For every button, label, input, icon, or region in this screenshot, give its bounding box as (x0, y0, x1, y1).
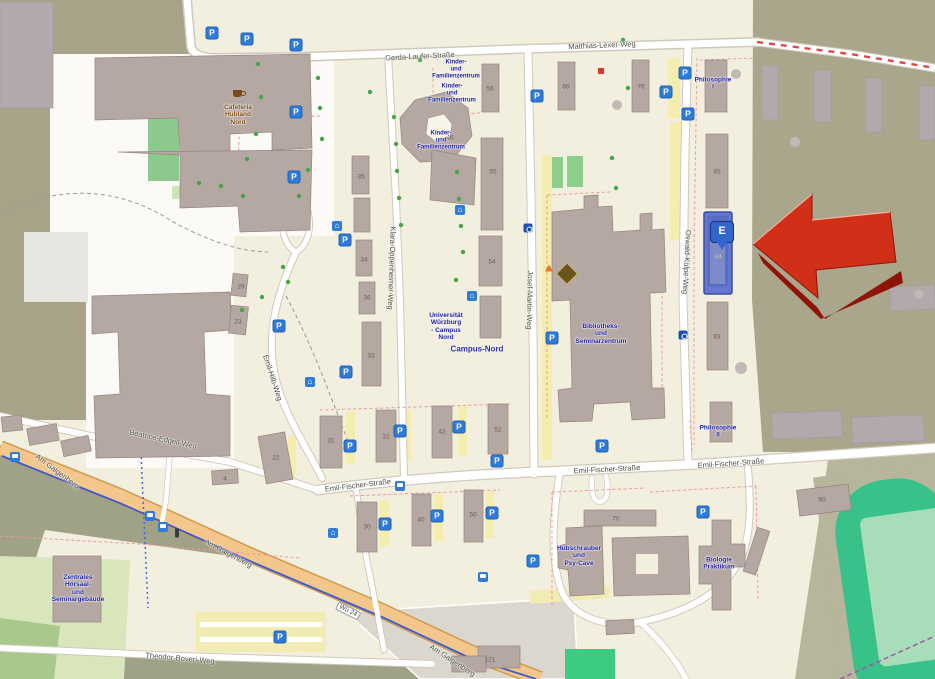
parking-icon: P (486, 507, 499, 520)
shelter-icon: ⌂ (305, 377, 315, 387)
parking-icon: P (206, 27, 219, 40)
building-number-33: 33 (367, 352, 374, 359)
building-number-40: 40 (417, 516, 424, 523)
parking-icon: P (379, 518, 392, 531)
shelter-icon: ⌂ (467, 291, 477, 301)
parking-icon: P (394, 425, 407, 438)
building-number-66: 66 (562, 83, 569, 90)
street-label-klara-oppenheimer: Klara-Oppenheimer-Weg (385, 226, 397, 309)
parking-icon: P (453, 421, 466, 434)
shelter-icon: ⌂ (328, 528, 338, 538)
building-number-22: 22 (272, 454, 279, 461)
postbox-icon (598, 68, 604, 74)
building-number-29: 29 (237, 283, 244, 290)
building-number-36: 36 (363, 294, 370, 301)
building-number-23: 23 (234, 318, 241, 325)
poi-label-familienzentrum-1: Kinder- und Familienzentrum (432, 60, 480, 81)
poi-label-universitaet: Universität Würzburg - Campus Nord (429, 312, 463, 342)
place-label-campus-nord: Campus-Nord (451, 344, 504, 353)
bus-stop-icon (395, 481, 405, 491)
parking-icon: P (596, 440, 609, 453)
poi-label-familienzentrum-3: Kinder- und Familienzentrum (417, 131, 465, 152)
building-number-76: 76 (637, 83, 644, 90)
poi-label-philosophie-1: Philosophie I (695, 77, 732, 92)
building-number-31: 31 (327, 437, 334, 444)
bus-stop-icon (145, 511, 155, 521)
building-number-121: 121 (485, 656, 496, 663)
parking-icon: P (682, 108, 695, 121)
building-number-52: 52 (494, 426, 501, 433)
parking-icon: P (274, 631, 287, 644)
building-number-85: 85 (713, 168, 720, 175)
bus-stop-icon (158, 522, 168, 532)
building-number-55: 55 (489, 168, 496, 175)
parking-icon: P (491, 455, 504, 468)
bus-st op-icon (10, 452, 20, 462)
parking-icon: P (527, 555, 540, 568)
building-number-34: 34 (360, 256, 367, 263)
building-number-32: 32 (382, 433, 389, 440)
building-number-90: 90 (818, 496, 825, 503)
poi-label-familienzentrum-2: Kinder- und Familienzentrum (428, 84, 476, 105)
poi-label-cafeteria: Cafeteria Hubland Nord (224, 104, 252, 126)
building-number-35: 35 (357, 173, 364, 180)
parking-icon: P (531, 90, 544, 103)
parking-icon: P (340, 366, 353, 379)
building-number-54: 54 (488, 258, 495, 265)
map-canvas[interactable]: Gerda-Laufer-Straße Matthias-Lexer-Weg K… (0, 0, 935, 679)
parking-icon: P (660, 86, 673, 99)
parking-icon: P (431, 510, 444, 523)
bicycle-parking-icon (524, 224, 533, 233)
parking-icon: P (679, 67, 692, 80)
poi-label-bibliothek: Bibliotheks- und Seminarzentrum (576, 323, 627, 345)
warning-icon (545, 265, 553, 272)
parking-icon: P (290, 106, 303, 119)
poi-label-zentrales: Zentrales Hörsaal- und Seminargebäude (52, 574, 104, 604)
poi-label-philosophie-2: Philosophie II (700, 425, 737, 440)
courtyard (636, 554, 658, 574)
building-number-56: 56 (486, 85, 493, 92)
building-number-4: 4 (223, 475, 227, 482)
shelter-icon: ⌂ (332, 221, 342, 231)
parking-icon: P (344, 440, 357, 453)
parking-icon: P (546, 332, 559, 345)
location-marker-pin[interactable]: E (710, 221, 734, 243)
parking-icon: P (241, 33, 254, 46)
parking-icon: P (697, 506, 710, 519)
building-number-30: 30 (363, 523, 370, 530)
building-number-42: 42 (438, 428, 445, 435)
parking-icon: P (288, 171, 301, 184)
poi-label-hubschrauber: Hubschrauber und Psy-Cave (557, 545, 601, 567)
street-label-josef-martin: Josef-Martin-Weg (524, 270, 534, 329)
cafe-cup-icon (233, 90, 242, 97)
building-number-50: 50 (469, 511, 476, 518)
poi-label-biologie: Biologie Praktikum (703, 557, 734, 572)
shelter-icon: ⌂ (455, 205, 465, 215)
parking-icon: P (339, 234, 352, 247)
building-number-46: 46 (446, 134, 453, 141)
parking-icon: P (290, 39, 303, 52)
building-number-70: 70 (612, 515, 619, 522)
traffic-light-icon (175, 529, 179, 538)
building-number-83: 83 (713, 333, 720, 340)
bus-stop-icon (478, 572, 488, 582)
bicycle-parking-icon (679, 331, 688, 340)
parking-icon: P (273, 320, 286, 333)
